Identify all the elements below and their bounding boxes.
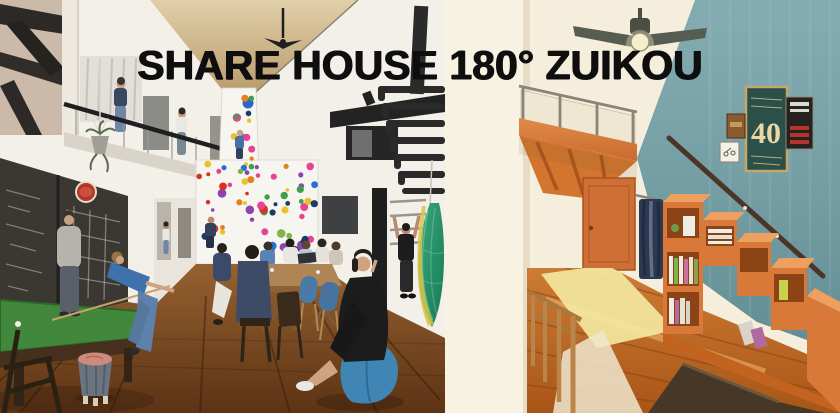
drum-stool [75, 353, 115, 407]
person-in-hallway [163, 221, 170, 254]
poster-white-frame [720, 142, 739, 162]
poster-large-40: 40 [746, 87, 787, 171]
poster-dark [786, 97, 813, 149]
white-sock [296, 381, 314, 391]
hanging-clothes [635, 195, 667, 279]
room-door [583, 178, 635, 270]
cue-ball [15, 321, 21, 327]
share-house-promo-image: 40 [0, 0, 840, 413]
poster-small-brown [727, 114, 745, 138]
round-wall-sign [76, 182, 96, 202]
dark-wall-panel [322, 196, 358, 234]
door-knob [589, 226, 593, 230]
poster-number: 40 [751, 117, 781, 150]
page-title: SHARE HOUSE 180° ZUIKOU [0, 42, 840, 89]
laptop [298, 252, 317, 264]
